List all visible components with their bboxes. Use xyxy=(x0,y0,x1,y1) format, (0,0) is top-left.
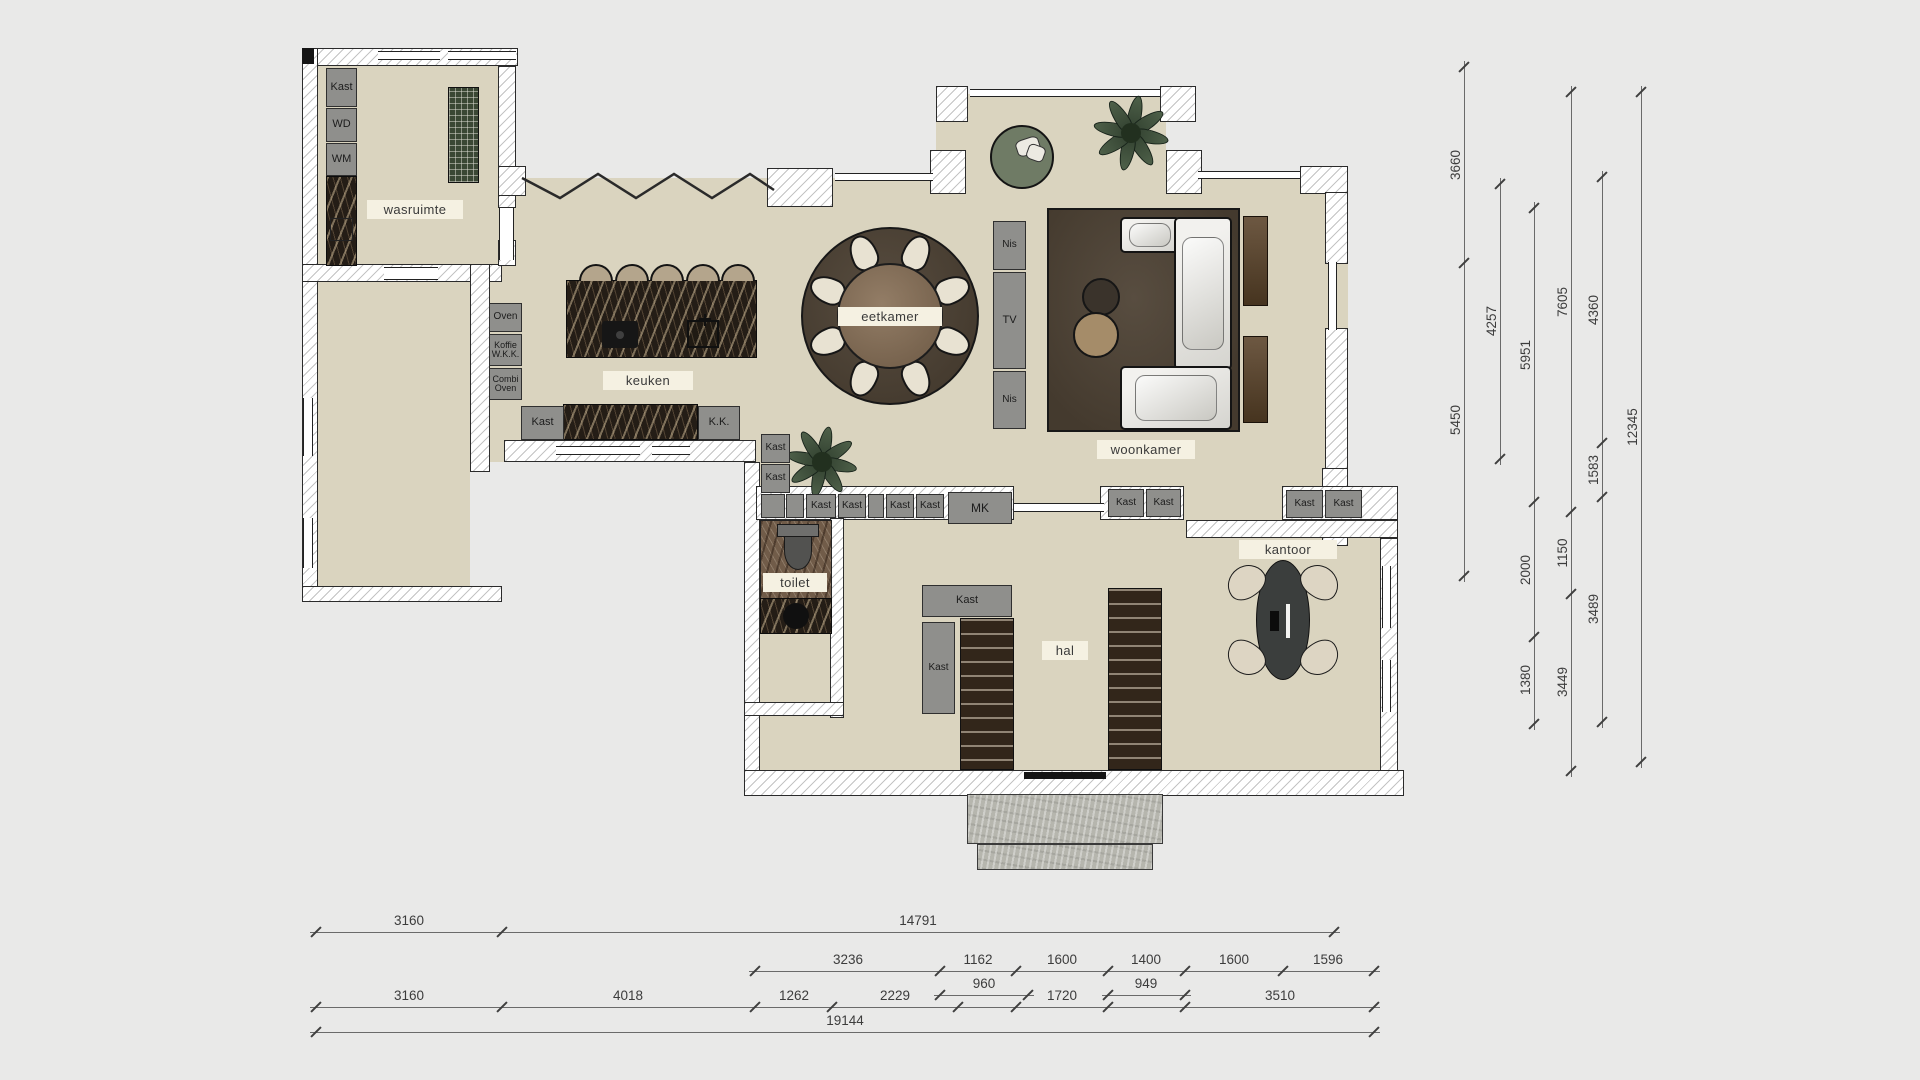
fixture-kast: Kast xyxy=(1325,490,1362,518)
plant xyxy=(1097,99,1165,167)
fixture-kast: Kast xyxy=(838,494,866,518)
dim-value: 5450 xyxy=(1448,380,1464,460)
room-label-toilet: toilet xyxy=(763,573,827,592)
wall-segment xyxy=(1166,150,1202,194)
dim-value: 12345 xyxy=(1625,387,1641,467)
fixture-kast: Kast xyxy=(1286,490,1323,518)
tap-icon xyxy=(704,314,706,326)
wall-solid xyxy=(1024,772,1106,779)
wall-segment xyxy=(744,702,844,716)
hob-dot xyxy=(616,331,624,339)
room-label-hal: hal xyxy=(1042,641,1088,660)
window xyxy=(378,51,440,60)
wall-segment xyxy=(936,86,968,122)
dim-value: 949 xyxy=(1106,976,1186,992)
dim-value: 14791 xyxy=(878,913,958,929)
wall-solid xyxy=(302,48,314,64)
fixture-oven: Oven xyxy=(489,303,522,332)
dim-line-horizontal xyxy=(310,1032,1380,1033)
fixture-kast: Kast xyxy=(916,494,944,518)
dim-value: 5951 xyxy=(1518,315,1534,395)
sideboard xyxy=(1243,216,1268,306)
lounge-chair xyxy=(990,125,1054,189)
fixture-kast: Kast xyxy=(806,494,836,518)
dim-line-horizontal xyxy=(934,995,1034,996)
room-label-wasruimte: wasruimte xyxy=(367,200,463,219)
wall-segment xyxy=(1300,166,1348,194)
fixture-kast: Kast xyxy=(326,68,357,107)
fixture-kast: Kast xyxy=(761,464,790,493)
dim-value: 3236 xyxy=(808,952,888,968)
window xyxy=(1382,566,1391,628)
window xyxy=(652,446,690,455)
floorplan: KastWDWMOvenKoffie W.K.K.Combi OvenKastK… xyxy=(0,0,1920,1080)
fixture-mk: MK xyxy=(948,492,1012,524)
dim-value: 3510 xyxy=(1240,988,1320,1004)
fixture-kast: Kast xyxy=(922,622,955,714)
dim-line-horizontal xyxy=(1102,995,1191,996)
pouf xyxy=(1073,312,1119,358)
window xyxy=(499,208,514,260)
dim-value: 19144 xyxy=(805,1013,885,1029)
cushion xyxy=(1025,142,1047,163)
window xyxy=(970,89,1160,97)
wall-segment xyxy=(930,150,966,194)
dim-line-vertical xyxy=(1500,178,1501,465)
kitchen-sink xyxy=(687,320,719,348)
dim-value: 3489 xyxy=(1586,569,1602,649)
staircase xyxy=(1108,588,1162,770)
fixture-nis: Nis xyxy=(993,371,1026,429)
sideboard xyxy=(1243,336,1268,423)
counter-marble xyxy=(566,280,757,358)
fixture-kast: Kast xyxy=(1146,489,1181,517)
dim-value: 4257 xyxy=(1484,281,1500,361)
dim-line-vertical xyxy=(1534,202,1535,730)
zigzag-wall xyxy=(518,160,778,206)
dim-value: 3449 xyxy=(1555,642,1571,722)
dim-line-vertical xyxy=(1602,171,1603,728)
pouf xyxy=(1082,278,1120,316)
dim-value: 2229 xyxy=(855,988,935,1004)
laptop xyxy=(1270,611,1279,631)
dim-value: 1600 xyxy=(1022,952,1102,968)
entry-porch xyxy=(977,844,1153,870)
fixture-k-k-: K.K. xyxy=(698,406,740,440)
fixture-wm: WM xyxy=(326,143,357,176)
window xyxy=(1382,660,1391,712)
window xyxy=(303,518,313,568)
dim-value: 1600 xyxy=(1194,952,1274,968)
tap-icon xyxy=(699,318,711,320)
room-floor xyxy=(318,282,470,586)
dim-value: 7605 xyxy=(1555,262,1571,342)
window xyxy=(448,51,516,60)
fixture-kast: Kast xyxy=(1108,489,1144,517)
fixture-blank xyxy=(761,494,785,518)
counter-marble xyxy=(563,404,698,440)
fixture-tv: TV xyxy=(993,272,1026,369)
dim-value: 1583 xyxy=(1586,430,1602,510)
room-label-eetkamer: eetkamer xyxy=(838,307,942,326)
dim-value: 1400 xyxy=(1106,952,1186,968)
fixture-blank xyxy=(868,494,884,518)
dim-value: 1380 xyxy=(1518,640,1534,720)
dim-value: 4360 xyxy=(1586,270,1602,350)
wall-segment xyxy=(1186,520,1398,538)
room-label-woonkamer: woonkamer xyxy=(1097,440,1195,459)
dim-value: 2000 xyxy=(1518,530,1534,610)
wall-segment xyxy=(1160,86,1196,122)
sofa-section xyxy=(1174,217,1232,370)
entry-porch xyxy=(967,794,1163,844)
wall-segment xyxy=(1325,192,1348,264)
fixture-nis: Nis xyxy=(993,221,1026,270)
sofa-section xyxy=(1120,366,1232,430)
dim-value: 3160 xyxy=(369,913,449,929)
toilet-fixture xyxy=(777,524,819,570)
wall-segment xyxy=(1325,328,1348,470)
dim-line-horizontal xyxy=(749,971,1380,972)
fixture-kast: Kast xyxy=(521,406,564,440)
dim-line-vertical xyxy=(1571,86,1572,777)
dim-value: 960 xyxy=(944,976,1024,992)
staircase xyxy=(960,618,1014,770)
dim-line-vertical xyxy=(1641,86,1642,768)
fixture-kast: Kast xyxy=(761,434,790,463)
dim-line-horizontal xyxy=(310,932,1340,933)
drying-rack xyxy=(448,87,479,183)
wall-segment xyxy=(302,586,502,602)
laundry-sink xyxy=(330,218,353,241)
dim-value: 3160 xyxy=(369,988,449,1004)
window xyxy=(1014,503,1104,512)
fixture-blank xyxy=(786,494,804,518)
wall-segment xyxy=(470,264,490,472)
dim-value: 1596 xyxy=(1288,952,1368,968)
dim-value: 1262 xyxy=(754,988,834,1004)
fixture-combi-oven: Combi Oven xyxy=(489,368,522,400)
washbasin xyxy=(783,603,809,629)
wall-segment xyxy=(830,518,844,718)
induction-hob xyxy=(602,321,638,348)
dim-line-vertical xyxy=(1464,61,1465,582)
room-label-kantoor: kantoor xyxy=(1239,540,1337,559)
dim-value: 4018 xyxy=(588,988,668,1004)
window xyxy=(303,398,313,456)
window xyxy=(556,446,640,455)
window xyxy=(835,173,933,181)
fixture-kast: Kast xyxy=(922,585,1012,617)
toilet-bowl xyxy=(784,536,812,570)
monitor xyxy=(1286,604,1290,638)
fixture-koffie-w-k-k-: Koffie W.K.K. xyxy=(489,334,522,366)
fixture-kast: Kast xyxy=(886,494,914,518)
window xyxy=(1328,262,1337,330)
dim-line-horizontal xyxy=(310,1007,1380,1008)
dim-value: 3660 xyxy=(1448,125,1464,205)
dim-value: 1150 xyxy=(1555,513,1571,593)
window xyxy=(1198,171,1300,179)
sofa-section xyxy=(1120,217,1180,253)
window xyxy=(384,267,438,280)
dim-value: 1162 xyxy=(938,952,1018,968)
plant-core xyxy=(812,452,831,471)
fixture-wd: WD xyxy=(326,108,357,142)
room-label-keuken: keuken xyxy=(603,371,693,390)
plant xyxy=(790,430,854,494)
dim-value: 1720 xyxy=(1022,988,1102,1004)
